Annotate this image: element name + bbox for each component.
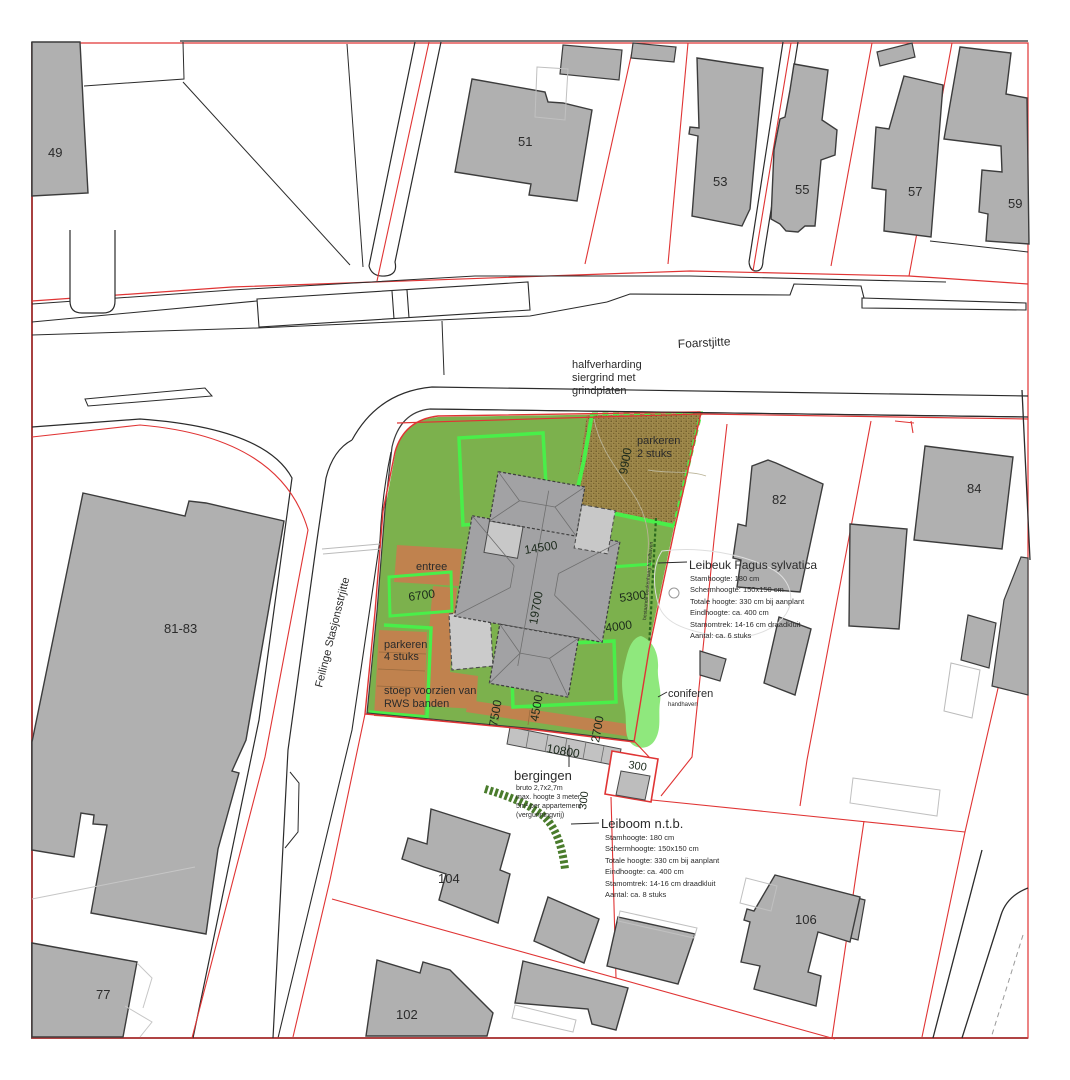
svg-text:handhaven: handhaven <box>668 702 698 708</box>
svg-text:stoep voorzien van: stoep voorzien van <box>384 685 476 697</box>
svg-text:59: 59 <box>1008 196 1022 211</box>
svg-text:5m² per appartement: 5m² per appartement <box>516 803 581 810</box>
svg-text:parkeren: parkeren <box>384 639 427 651</box>
svg-text:Leiboom n.t.b.: Leiboom n.t.b. <box>601 816 683 831</box>
svg-text:4 stuks: 4 stuks <box>384 651 419 663</box>
svg-text:Leibeuk Fagus sylvatica: Leibeuk Fagus sylvatica <box>689 558 817 572</box>
svg-text:coniferen: coniferen <box>668 688 713 700</box>
svg-text:siergrind met: siergrind met <box>572 372 636 384</box>
svg-text:Eindhoogte: ca. 400 cm: Eindhoogte: ca. 400 cm <box>605 867 684 876</box>
svg-text:49: 49 <box>48 145 62 160</box>
svg-text:bruto 2,7x2,7m: bruto 2,7x2,7m <box>516 785 563 792</box>
svg-text:104: 104 <box>438 871 460 886</box>
svg-text:82: 82 <box>772 492 786 507</box>
svg-text:84: 84 <box>967 481 981 496</box>
svg-text:(vergunningvrij): (vergunningvrij) <box>516 812 564 819</box>
svg-text:2 stuks: 2 stuks <box>637 448 672 460</box>
svg-text:Aantal: ca. 6 stuks: Aantal: ca. 6 stuks <box>690 631 752 640</box>
svg-text:106: 106 <box>795 912 817 927</box>
svg-text:RWS banden: RWS banden <box>384 698 449 710</box>
svg-text:grindplaten: grindplaten <box>572 385 626 397</box>
svg-text:max. hoogte 3 meter: max. hoogte 3 meter <box>516 794 581 801</box>
svg-text:Totale hoogte: 330 cm bij aanp: Totale hoogte: 330 cm bij aanplant <box>605 856 720 865</box>
svg-text:Foarstjitte: Foarstjitte <box>677 334 731 351</box>
svg-text:Stamomtrek: 14-16 cm draadklui: Stamomtrek: 14-16 cm draadkluit <box>690 620 801 629</box>
svg-text:Aantal: ca. 8 stuks: Aantal: ca. 8 stuks <box>605 890 667 899</box>
svg-text:Stamhoogte: 180 cm: Stamhoogte: 180 cm <box>605 833 674 842</box>
svg-text:bergingen: bergingen <box>514 768 572 783</box>
svg-text:entree: entree <box>416 561 447 573</box>
svg-text:81-83: 81-83 <box>164 621 197 636</box>
svg-text:Eindhoogte: ca. 400 cm: Eindhoogte: ca. 400 cm <box>690 608 769 617</box>
svg-text:77: 77 <box>96 987 110 1002</box>
svg-text:102: 102 <box>396 1007 418 1022</box>
svg-text:halfverharding: halfverharding <box>572 359 642 371</box>
svg-text:Schermhoogte: 150x150 cm: Schermhoogte: 150x150 cm <box>690 585 784 594</box>
svg-text:Totale hoogte: 330 cm bij aanp: Totale hoogte: 330 cm bij aanplant <box>690 597 805 606</box>
svg-text:53: 53 <box>713 174 727 189</box>
svg-text:Stamomtrek: 14-16 cm draadklui: Stamomtrek: 14-16 cm draadkluit <box>605 879 716 888</box>
svg-text:Stamhoogte: 180 cm: Stamhoogte: 180 cm <box>690 574 759 583</box>
svg-text:Schermhoogte: 150x150 cm: Schermhoogte: 150x150 cm <box>605 844 699 853</box>
svg-text:57: 57 <box>908 184 922 199</box>
svg-text:51: 51 <box>518 134 532 149</box>
svg-text:parkeren: parkeren <box>637 435 680 447</box>
svg-text:55: 55 <box>795 182 809 197</box>
